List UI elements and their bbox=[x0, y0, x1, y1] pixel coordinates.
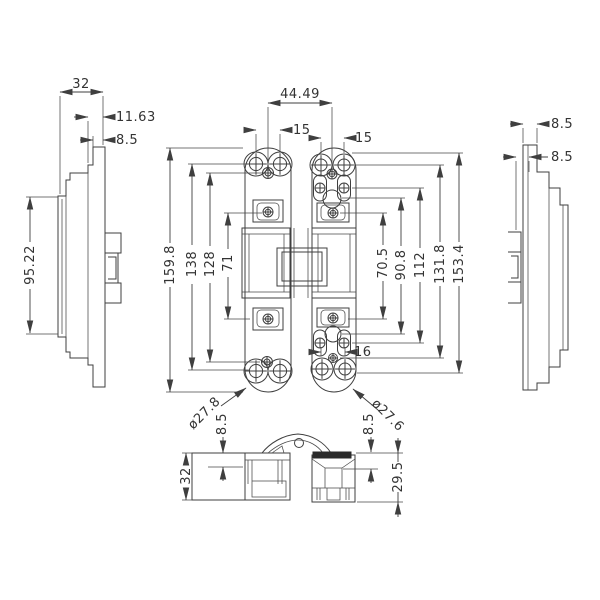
gasket-bar bbox=[313, 452, 351, 458]
screw-hole bbox=[268, 152, 292, 176]
dim-right-3: 112 bbox=[413, 252, 428, 278]
center-screw bbox=[327, 169, 337, 179]
dim-right-2: 90.8 bbox=[394, 250, 409, 281]
center-screw bbox=[263, 168, 274, 179]
screw-hole bbox=[311, 358, 333, 380]
dim-bottom-left-depth: 32 bbox=[179, 467, 194, 485]
dim-hole-span: 138 bbox=[185, 251, 200, 277]
screw-hole bbox=[333, 154, 355, 176]
dim-right-view-step1: 8.5 bbox=[551, 117, 573, 132]
tab-screw bbox=[263, 314, 273, 324]
tab-screw bbox=[263, 207, 273, 217]
dim-screw-span: 128 bbox=[203, 251, 218, 277]
dim-right-4: 131.8 bbox=[433, 244, 448, 284]
dim-bottom-right-height: 29.5 bbox=[391, 462, 406, 493]
dim-overall-length: 159.8 bbox=[163, 245, 178, 285]
screw-hole bbox=[244, 359, 268, 383]
dim-right-hole-pitch: 15 bbox=[355, 131, 373, 146]
screw-hole bbox=[334, 358, 356, 380]
dim-slot-pitch: 16 bbox=[354, 345, 372, 360]
screw-hole bbox=[268, 359, 292, 383]
screw-hole bbox=[310, 154, 332, 176]
dim-left-view-width: 32 bbox=[72, 77, 90, 92]
dim-bottom-right-step: 8.5 bbox=[362, 413, 377, 435]
dim-left-hole-pitch: 15 bbox=[293, 123, 311, 138]
hinge-technical-drawing: 32 11.63 8.5 95.22 bbox=[0, 0, 600, 600]
dim-right-view-step2: 8.5 bbox=[551, 150, 573, 165]
technical-drawing-page: 32 11.63 8.5 95.22 bbox=[0, 0, 600, 600]
dim-tab-span: 71 bbox=[221, 254, 236, 272]
tab-screw bbox=[328, 313, 338, 323]
dim-center-distance: 44.49 bbox=[280, 87, 320, 102]
dim-right-1: 70.5 bbox=[376, 248, 391, 279]
tab-screw bbox=[328, 208, 338, 218]
dim-bottom-left-step: 8.5 bbox=[215, 413, 230, 435]
dim-right-5: 153.4 bbox=[452, 244, 467, 284]
dim-left-view-plate-height: 95.22 bbox=[23, 245, 38, 285]
dim-left-view-step2: 8.5 bbox=[116, 133, 138, 148]
dim-left-view-step1: 11.63 bbox=[116, 110, 156, 125]
